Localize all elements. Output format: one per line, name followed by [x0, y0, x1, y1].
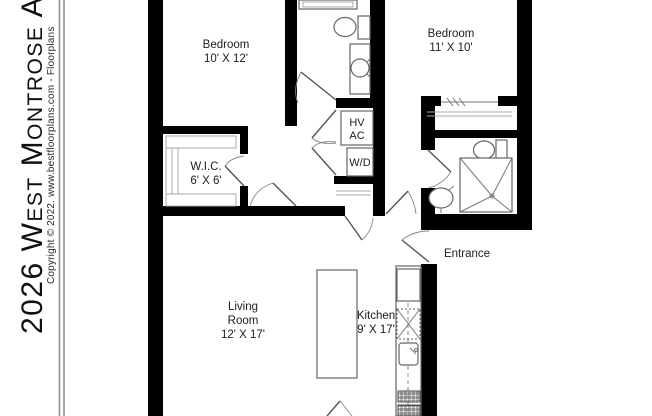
- wall-hall-bottom: [240, 206, 345, 216]
- refrigerator: [397, 269, 420, 301]
- wic-shelf-top: [166, 136, 236, 148]
- wic-door: [225, 156, 244, 186]
- living-room-label-line1: Living: [228, 301, 258, 313]
- kitchen-label: Kitchen: [357, 310, 395, 322]
- wall-bath2-left-upper: [421, 96, 435, 150]
- living-room-dims: 12' X 17': [221, 329, 265, 341]
- utility-closet-doors: [312, 110, 336, 175]
- linen-closet: [336, 191, 371, 195]
- bathroom-1: [296, 0, 370, 103]
- bathroom-1-door: [296, 72, 336, 103]
- vanity-sink: [350, 44, 370, 94]
- wall-hvac-right: [373, 98, 385, 216]
- walk-in-closet: W.I.C. 6' X 6': [166, 136, 244, 206]
- kitchen-island: [317, 270, 357, 378]
- hvac-label-line2: AC: [349, 130, 364, 142]
- page-title: 2026 West Montrose Avenue: [16, 0, 49, 334]
- wic-dims: 6' X 6': [190, 175, 221, 187]
- bedroom-2-dims: 11' X 10': [429, 42, 472, 54]
- sidebar-divider: [60, 0, 65, 416]
- hvac-label-line1: HV: [349, 117, 365, 129]
- toilet: [334, 16, 370, 39]
- floor-plan-canvas: 2026 West Montrose Avenue Copyright © 20…: [0, 0, 652, 416]
- wall-bed2-closet-stub-right: [498, 96, 517, 106]
- kitchen: Kitchen 9' X 17': [317, 266, 421, 416]
- living-room-label-line2: Room: [228, 315, 259, 327]
- wic-shelf-bottom: [166, 194, 236, 206]
- utility-closet: HV AC W/D: [312, 110, 373, 240]
- entrance: Entrance: [402, 231, 490, 262]
- wall-wic-bottom: [148, 206, 248, 216]
- bedroom-2-label: Bedroom: [428, 28, 475, 40]
- wic-label: W.I.C.: [190, 161, 221, 173]
- bathtub: [299, 0, 357, 9]
- wall-right-exterior: [517, 0, 532, 216]
- wall-bath2-bottom: [421, 214, 532, 230]
- sidebar-title-block: 2026 West Montrose Avenue Copyright © 20…: [16, 0, 64, 416]
- hall-living-door: [345, 216, 373, 240]
- wall-bath1-bed2: [370, 0, 385, 108]
- shower: [460, 158, 512, 212]
- bedroom-1-door: [250, 183, 296, 206]
- washer-dryer-label: W/D: [349, 157, 370, 169]
- living-room: Living Room 12' X 17': [221, 301, 265, 341]
- wall-wic-top: [163, 126, 248, 134]
- bedroom-2-door: [386, 191, 416, 214]
- wall-closet-bottom: [421, 130, 532, 138]
- bathroom-2-door: [428, 150, 451, 188]
- kitchen-counter: [396, 266, 421, 416]
- bedroom-1-dims: 10' X 12': [204, 53, 248, 65]
- bottom-door-partial: [327, 401, 352, 416]
- wall-kitchen-right: [421, 264, 437, 416]
- wall-wic-right-upper: [240, 126, 248, 154]
- copyright-text: Copyright © 2022. www.bestfloorplans.com…: [46, 26, 57, 284]
- wall-hvac-mid: [334, 176, 373, 184]
- kitchen-sink: [399, 343, 418, 365]
- bathroom-2: [428, 140, 512, 213]
- wall-bed1-bath1: [285, 0, 297, 126]
- entrance-door: [402, 231, 429, 262]
- kitchen-dims: 9' X 17': [357, 324, 395, 336]
- bedroom-1-label: Bedroom: [203, 39, 250, 51]
- floorplan-page: 2026 West Montrose Avenue Copyright © 20…: [0, 0, 652, 416]
- entrance-label: Entrance: [444, 248, 490, 260]
